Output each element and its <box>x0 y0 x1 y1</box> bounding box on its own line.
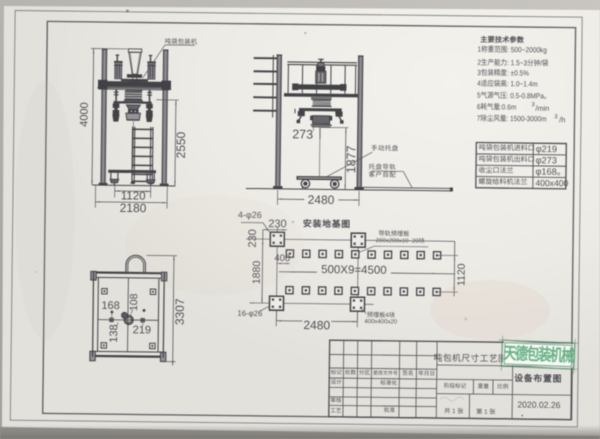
svg-text:2180: 2180 <box>120 201 147 215</box>
svg-text:138: 138 <box>108 324 120 343</box>
svg-text:批准: 批准 <box>384 406 396 414</box>
svg-text:/min: /min <box>535 104 549 113</box>
svg-text:签名: 签名 <box>402 369 413 377</box>
svg-text:处数: 处数 <box>345 368 357 376</box>
svg-text:标准化: 标准化 <box>380 378 397 386</box>
svg-text:设计: 设计 <box>331 378 343 386</box>
svg-text:更改文件号: 更改文件号 <box>373 369 398 376</box>
svg-text:年月日: 年月日 <box>418 369 435 377</box>
svg-text:设备布置图: 设备布置图 <box>514 372 562 384</box>
svg-text:1877: 1877 <box>344 145 358 173</box>
svg-text:吨袋包装机: 吨袋包装机 <box>165 36 198 45</box>
svg-text:预埋板4块: 预埋板4块 <box>367 311 395 319</box>
svg-text:第 1 张: 第 1 张 <box>476 408 496 416</box>
svg-text:168: 168 <box>101 300 120 312</box>
svg-text:2480: 2480 <box>308 193 335 207</box>
svg-text:500X9=4500: 500X9=4500 <box>321 264 387 277</box>
svg-text:108: 108 <box>128 293 140 311</box>
svg-text:手动托盘: 手动托盘 <box>371 143 399 152</box>
svg-text:托盘导轨: 托盘导轨 <box>369 162 397 171</box>
svg-text:重量: 重量 <box>478 382 490 390</box>
svg-text:审核: 审核 <box>330 396 342 404</box>
svg-text:4000: 4000 <box>78 102 90 127</box>
svg-text:工艺: 工艺 <box>330 407 342 414</box>
svg-text:主要技术参数: 主要技术参数 <box>480 35 525 45</box>
svg-text:3307: 3307 <box>173 298 187 325</box>
svg-text:/h: /h <box>559 115 565 124</box>
svg-text:共 1 张: 共 1 张 <box>444 407 464 415</box>
svg-text:安装地基图: 安装地基图 <box>303 218 351 230</box>
svg-text:16-φ26: 16-φ26 <box>237 309 262 318</box>
svg-text:273: 273 <box>292 127 313 141</box>
svg-text:2020.02.26: 2020.02.26 <box>517 399 560 410</box>
svg-text:φ219: φ219 <box>536 144 557 154</box>
svg-text:2550: 2550 <box>174 131 188 158</box>
svg-text:阶段标记: 阶段标记 <box>444 382 467 390</box>
svg-text:φ273: φ273 <box>536 155 557 165</box>
svg-text:2480: 2480 <box>303 318 330 332</box>
svg-text:收尘口法兰: 收尘口法兰 <box>478 165 513 174</box>
svg-text:比例: 比例 <box>497 382 509 390</box>
svg-text:天德包装机械: 天德包装机械 <box>503 343 575 366</box>
svg-text:分区: 分区 <box>359 368 371 376</box>
svg-text:400x400: 400x400 <box>535 178 568 188</box>
svg-text:导轨预埋板: 导轨预埋板 <box>378 229 409 237</box>
svg-text:标记: 标记 <box>331 368 343 376</box>
svg-text:400x400x20: 400x400x20 <box>364 319 397 325</box>
svg-text:219: 219 <box>133 324 152 336</box>
svg-text:φ168。: φ168。 <box>535 167 566 177</box>
svg-text:吨包机尺寸工艺图: 吨包机尺寸工艺图 <box>434 352 508 364</box>
